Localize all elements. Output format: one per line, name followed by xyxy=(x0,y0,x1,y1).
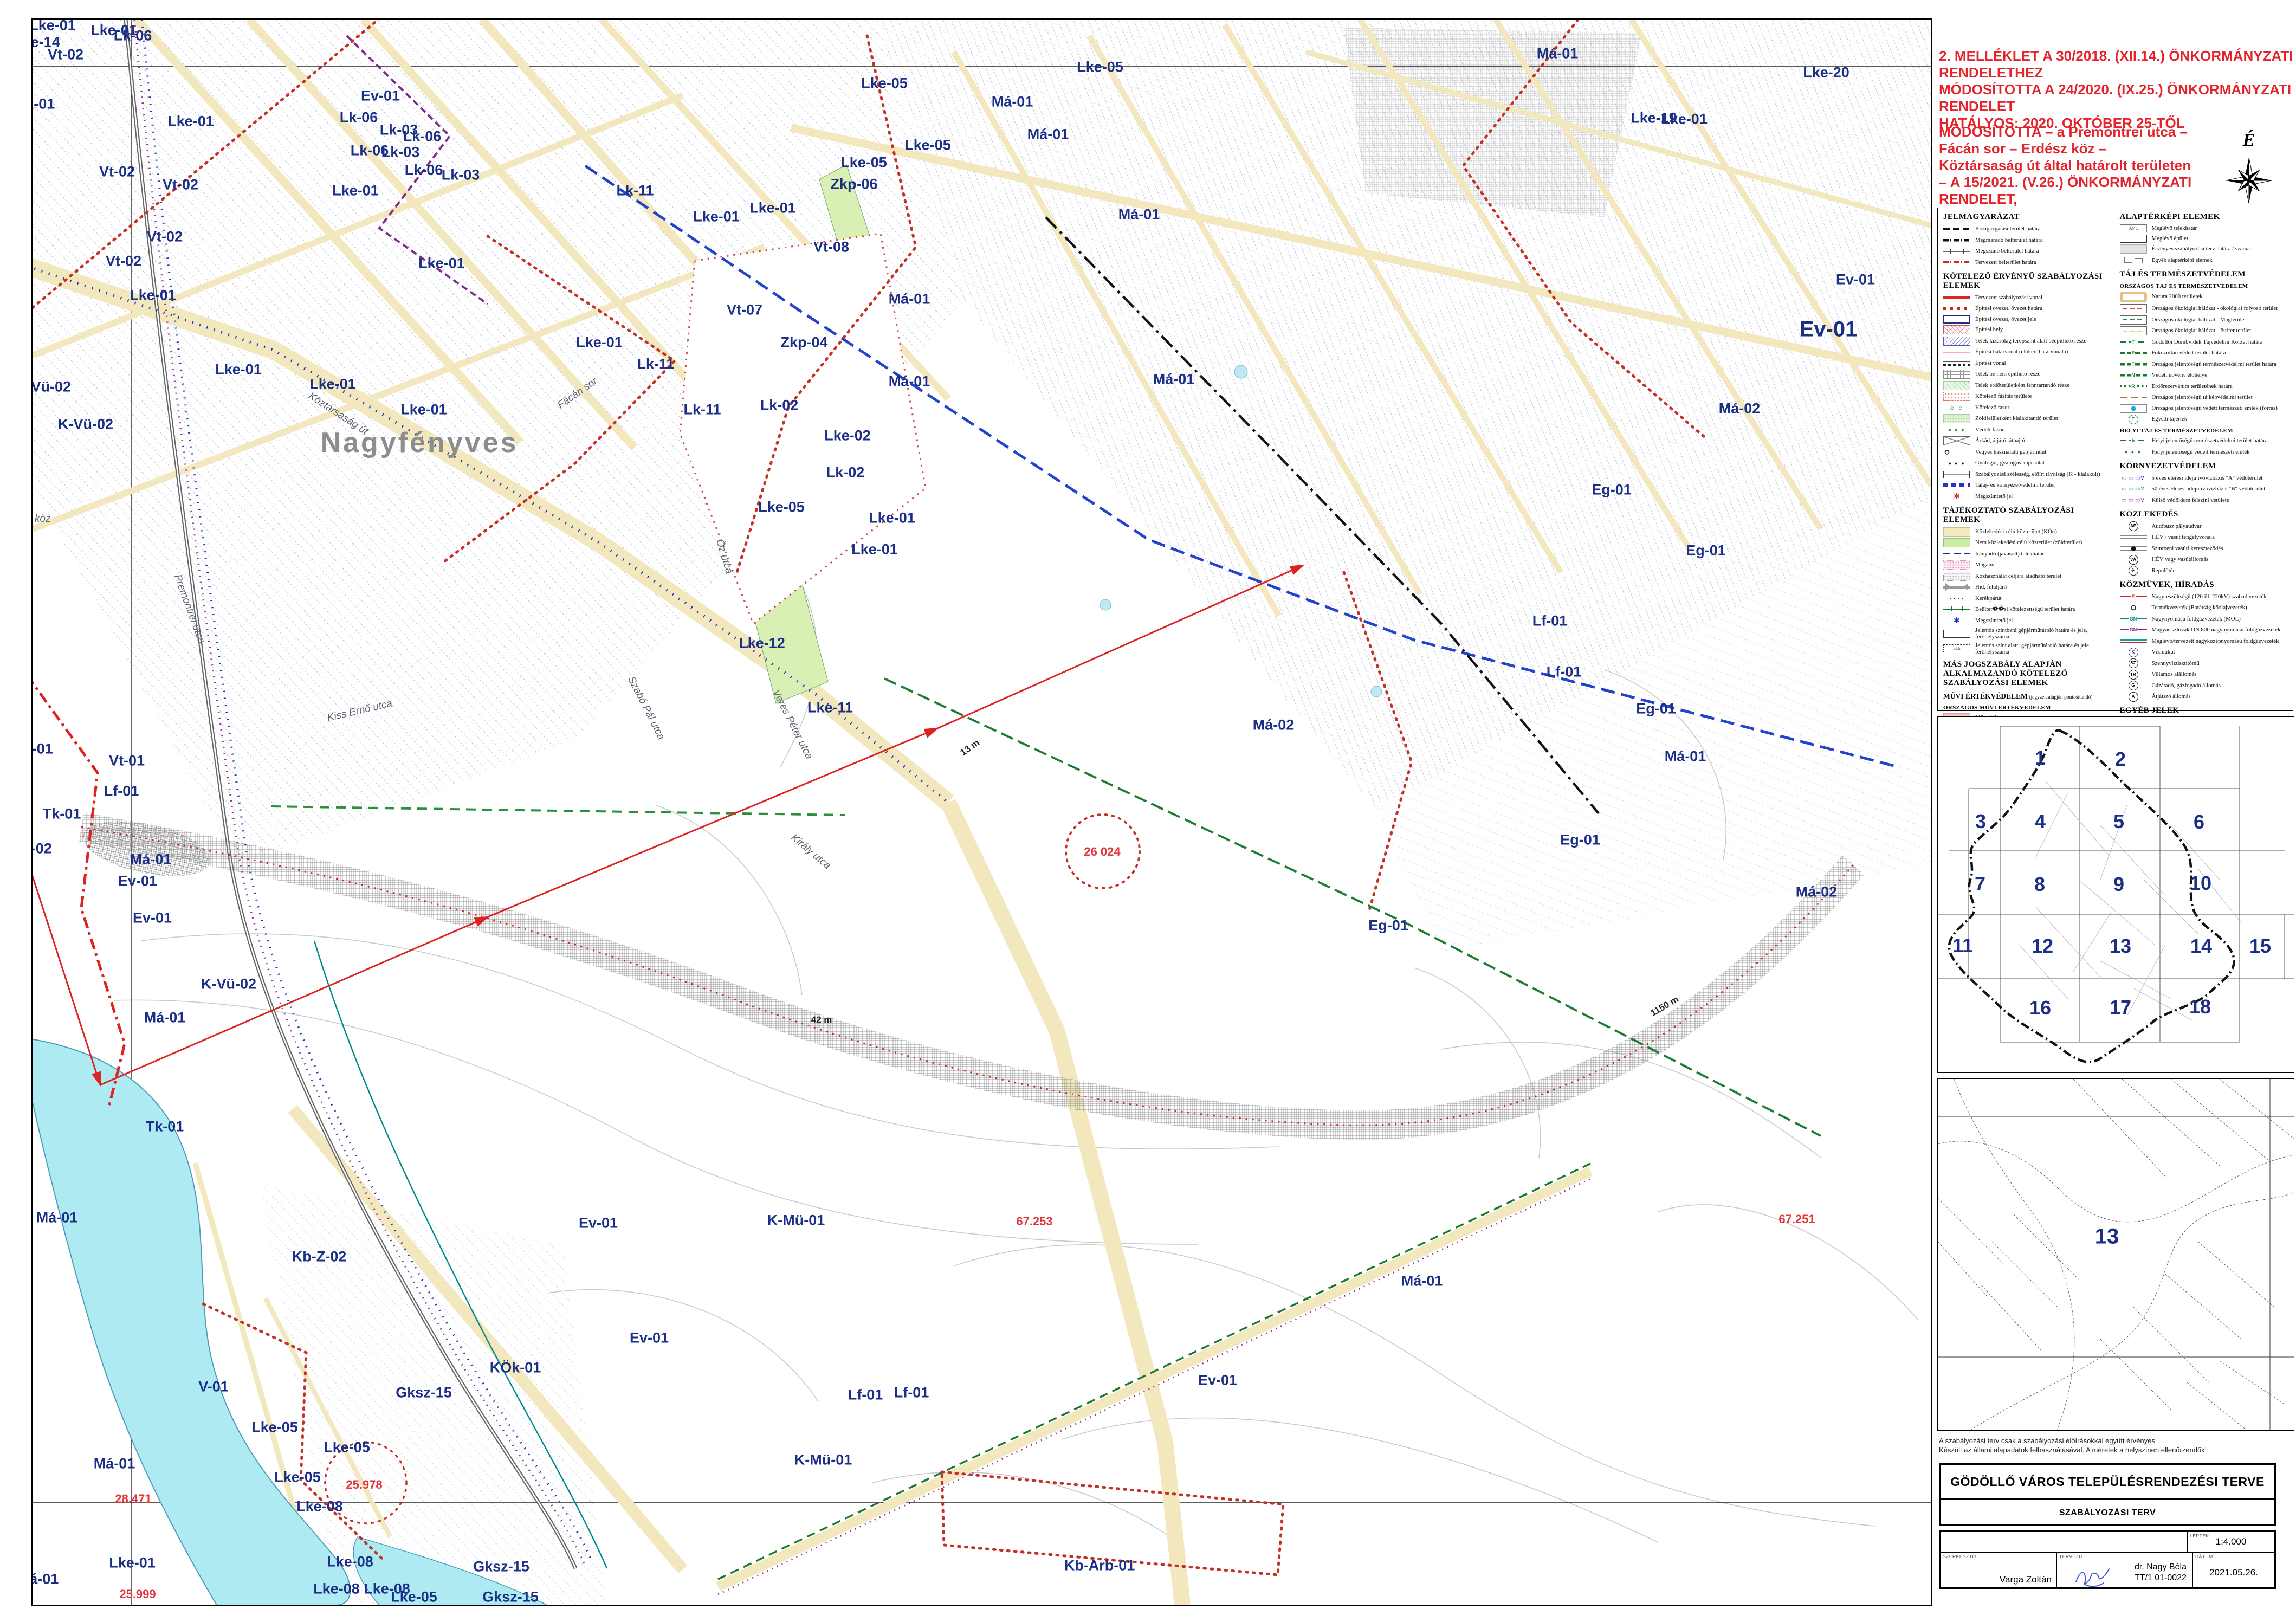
legend-item-label: Tervezett belterület határa xyxy=(1975,259,2036,266)
grid-gray-swatch-icon xyxy=(1943,370,1970,379)
dash-hollow-green-swatch-icon: V xyxy=(2120,484,2147,494)
legend-item-label: Országos jelentőségű természetvédelmi te… xyxy=(2152,361,2276,367)
legend-item: TEgyedi tájérték xyxy=(2120,415,2290,424)
legend-item: Építési övezet, övezet határa xyxy=(1943,304,2113,313)
dim-line-swatch-icon xyxy=(1943,470,1970,479)
legend-item-label: Telek erdőterületként fenntartandó része xyxy=(1975,382,2069,389)
legend-item: Megszüntető jel xyxy=(1943,492,2113,501)
legend-item: TOrszágos jelentőségű természetvédelmi t… xyxy=(2120,360,2290,369)
dash-blue-thick-swatch-icon xyxy=(1943,481,1970,490)
legend-item-label: Építési vonal xyxy=(1975,360,2006,366)
legend-section-heading: KÖTELEZŐ ÉRVÉNYŰ SZABÁLYOZÁSI ELEMEK xyxy=(1943,272,2113,290)
amendment-note-1: 2. MELLÉKLET A 30/2018. (XII.14.) ÖNKORM… xyxy=(1939,48,2296,132)
editor-label: SZERKESZTŐ xyxy=(1943,1554,1976,1559)
legend-item: V5 éves elérési idejű ivóvízbázis "A" vé… xyxy=(2120,474,2290,483)
overview-tile-number: 18 xyxy=(2189,996,2211,1018)
legend-item-label: Közhasználat céljára átadható terület xyxy=(1975,573,2061,579)
dash-hollow-blue-swatch-icon: V xyxy=(2120,474,2147,483)
legend-item: Építési hely xyxy=(1943,325,2113,334)
note2-line2: Köztársaság út által határolt területen xyxy=(1939,157,2221,174)
regulation-plan-map: Lke-01Lke-14Lk-06Lke-01Vt-02KÖk-01Lke-01… xyxy=(31,18,1932,1606)
legend-item: Közhasználat céljára átadható terület xyxy=(1943,572,2113,581)
legend-section-heading: KÖRNYEZETVÉDELEM xyxy=(2120,462,2290,471)
legend-item: Árkád, átjáró, áthajtó xyxy=(1943,436,2113,445)
legend-item-label: Nem közlekedési célú közterület (zöldter… xyxy=(1975,539,2082,546)
legend-item-label: Termékvezeték (Barátság kőolajvezeték) xyxy=(2152,604,2247,611)
line-red-E-swatch-icon: E xyxy=(2120,592,2147,602)
legend-item-label: Villamos alállomás xyxy=(2152,671,2197,677)
bowtie-swatch-icon xyxy=(1943,583,1970,592)
legend-item: KVízműkút xyxy=(2120,648,2290,657)
legend-item-label: Kötelező fasor xyxy=(1975,404,2009,411)
title-block-table: LÉPTÉK 1:4.000 SZERKESZTŐ Varga Zoltán T… xyxy=(1939,1530,2276,1589)
dash-green-thin-swatch-icon: h xyxy=(2120,436,2147,445)
designer-label: TERVEZŐ xyxy=(2059,1554,2083,1559)
box-x-swatch-icon xyxy=(1943,436,1970,445)
box-navy-swatch-icon xyxy=(1943,315,1970,324)
legend-item-label: Magyar-szlovák DN 800 nagynyomású földgá… xyxy=(2152,626,2281,633)
corner-gray-swatch-icon xyxy=(2120,256,2147,265)
legend-item: SZSzennyvíztisztítómű xyxy=(2120,659,2290,668)
legend-item-label: Szennyvíztisztítómű xyxy=(2152,660,2200,667)
fill-green-dots-swatch-icon xyxy=(1943,414,1970,423)
legend-item: Híd, felüljáró xyxy=(1943,583,2113,592)
legend-item: Építési övezet, övezet jele xyxy=(1943,315,2113,324)
overview-street-texture xyxy=(2019,782,2241,1020)
overview-tile-number: 6 xyxy=(2194,811,2204,833)
legend-item-label: Zöldfelületként kialakítandó terület xyxy=(1975,415,2058,422)
legend-item-label: Gázátadó, gázfogadó állomás xyxy=(2152,682,2221,689)
legend-item-label: Egyedi tájérték xyxy=(2152,416,2188,422)
legend-item-label: Vízműkút xyxy=(2152,649,2175,655)
legend-section-heading: ORSZÁGOS TÁJ ÉS TERMÉSZETVÉDELEM xyxy=(2120,283,2290,289)
legend-item-label: Megszüntető jel xyxy=(1975,617,2013,624)
circle-swatch-icon: ✈ xyxy=(2120,566,2147,576)
legend-item-label: Vegyes használatú gépjárműút xyxy=(1975,449,2046,455)
legend-item-label: Építési hely xyxy=(1975,326,2003,333)
legend-item: Irányadó (javasolt) telekhatár xyxy=(1943,550,2113,559)
dashdot-red-swatch-icon xyxy=(1943,258,1970,267)
legend-item: Megmaradó belterület határa xyxy=(1943,236,2113,245)
dashdot-black-swatch-icon xyxy=(1943,236,1970,245)
legend-item: Szintbeni vasúti kereszteződés xyxy=(2120,544,2290,553)
legend-item: Kerékpárút xyxy=(1943,594,2113,603)
legend-item: VÁHÉV vagy vasútállomás xyxy=(2120,555,2290,564)
hatch-blue-swatch-icon xyxy=(1943,337,1970,346)
legend-section-heading: HELYI TÁJ ÉS TERMÉSZETVÉDELEM xyxy=(2120,428,2290,434)
legend-item: Tervezett szabályozási vonal xyxy=(1943,293,2113,302)
legend-item: Országos jelentőségű tájképvédelmi terül… xyxy=(2120,393,2290,402)
box-dash-yellow-swatch-icon xyxy=(2120,326,2147,335)
legend-item-label: Külső védőidom felszíni vetülete xyxy=(2152,497,2229,503)
legend-item: Országos ökológiai hálózat - Magterület xyxy=(2120,315,2290,325)
legend-item: Talaj- és környezetvédelmi terület xyxy=(1943,481,2113,490)
legend-item: Telek be nem építhető része xyxy=(1943,370,2113,379)
disclaimer-text: A szabályozási terv csak a szabályozási … xyxy=(1939,1436,2294,1455)
overview-tile-number: 4 xyxy=(2035,810,2046,833)
legend-item-label: Kötelező fásítás területe xyxy=(1975,393,2032,399)
gate-green-swatch-icon xyxy=(1943,605,1970,614)
circles-green-swatch-icon xyxy=(1943,403,1970,412)
inset-drawing xyxy=(1938,1079,2294,1430)
designer-cell: TERVEZŐ dr. Nagy Béla TT/1 01-0022 xyxy=(2057,1553,2193,1587)
dots-dkgreen-swatch-icon xyxy=(1943,425,1970,435)
legend-item-label: Híd, felüljáró xyxy=(1975,584,2007,590)
legend-item-label: Érvényes szabályozási terv határa / szám… xyxy=(2152,245,2250,252)
legend-item-label: Országos jelentőségű védett természeti e… xyxy=(2152,405,2278,411)
legend-item-label: Gödöllői Dombvidék Tájvédelmi Körzet hat… xyxy=(2152,339,2263,345)
inset-tile-number: 13 xyxy=(2095,1225,2119,1249)
box-dash-red-swatch-icon xyxy=(2120,304,2147,313)
legend-item-label: Védett növény élőhelye xyxy=(2152,372,2208,378)
legend-item: NVédett növény élőhelye xyxy=(2120,371,2290,380)
signature xyxy=(2073,1566,2111,1589)
legend-section-heading: JELMAGYARÁZAT xyxy=(1943,212,2113,222)
legend-item-label: Építési határvonal (előkert határvonala) xyxy=(1975,348,2068,355)
fill-gray-dots-swatch-icon xyxy=(1943,572,1970,581)
legend-item-label: Átjátszó állomás xyxy=(2152,693,2191,700)
legend-item-label: Védett fasor xyxy=(1975,426,2004,433)
legend-item-label: Országos jelentőségű tájképvédelmi terül… xyxy=(2152,394,2253,400)
compass-rose-icon xyxy=(2219,151,2279,210)
legend-section-heading: ALAPTÉRKÉPI ELEMEK xyxy=(2120,212,2290,222)
legend-section-heading: KÖZLEKEDÉS xyxy=(2120,510,2290,519)
dots-area-red-swatch-icon xyxy=(1943,392,1970,401)
legend-item: Közlekedési célú közterület (KÖu) xyxy=(1943,527,2113,537)
overview-tile-number: 8 xyxy=(2034,873,2045,896)
line-circles-swatch-icon xyxy=(1943,448,1970,457)
plan-subtitle: SZABÁLYOZÁSI TERV xyxy=(1941,1500,2274,1526)
disclaimer-line: Készült az állami alapadatok felhasználá… xyxy=(1939,1445,2294,1455)
title-block-empty-cell xyxy=(1941,1532,2188,1552)
legend-item-label: HÉV vagy vasútállomás xyxy=(2152,556,2209,563)
legend-section-heading: MŰVI ÉRTÉKVÉDELEM (jegyzék alapján ponto… xyxy=(1943,692,2113,701)
legend-item-label: Fokozottan védett terület határa xyxy=(2152,350,2226,356)
scale-value: 1:4.000 xyxy=(2216,1536,2247,1547)
dot-cyan-swatch-icon xyxy=(2120,404,2147,413)
legend-item-label: Meglévő/tervezett nagyközépnyomású földg… xyxy=(2152,638,2279,644)
note1-line1: 2. MELLÉKLET A 30/2018. (XII.14.) ÖNKORM… xyxy=(1939,48,2296,81)
legend-item-label: Megmaradó belterület határa xyxy=(1975,237,2043,243)
legend-item: Beültet��si kötelezettségű terület határ… xyxy=(1943,605,2113,614)
legend-item: RErdőrezervátum területének határa xyxy=(2120,382,2290,391)
overview-tile-number: 5 xyxy=(2113,810,2124,833)
legend-section-heading: TÁJ ÉS TERMÉSZETVÉDELEM xyxy=(2120,270,2290,279)
overview-tile-number: 3 xyxy=(1975,810,1986,833)
disclaimer-line: A szabályozási terv csak a szabályozási … xyxy=(1939,1436,2294,1445)
legend-item: VKülső védőidom felszíni vetülete xyxy=(2120,496,2290,505)
overview-tile-number: 13 xyxy=(2110,935,2131,958)
date-cell: DÁTUM 2021.05.26. xyxy=(2193,1553,2274,1587)
overview-tile-number: 10 xyxy=(2190,872,2211,895)
legend-item-label: Közigazgatási terület határa xyxy=(1975,225,2041,232)
editor-cell: SZERKESZTŐ Varga Zoltán xyxy=(1941,1553,2057,1587)
fill-gray-swatch-icon xyxy=(2120,244,2147,254)
legend-item: Megszűnő belterület határa xyxy=(1943,247,2113,256)
legend-item-label: Irányadó (javasolt) telekhatár xyxy=(1975,551,2044,557)
legend-item: Szabályozási szélesség, előírt távolság … xyxy=(1943,470,2113,479)
legend-column-right: ALAPTÉRKÉPI ELEMEK0241Meglévő telekhatár… xyxy=(2120,212,2290,708)
map-drawing xyxy=(33,20,1931,1605)
legend-item: Natura 2000 területek xyxy=(2120,292,2290,302)
note2-line3: – A 15/2021. (V.26.) ÖNKORMÁNYZATI RENDE… xyxy=(1939,174,2221,208)
line-pink-swatch-icon xyxy=(1943,347,1970,357)
legend-item: Országos jelentőségű védett természeti e… xyxy=(2120,404,2290,413)
legend-section-heading: EGYÉB JELEK xyxy=(2120,706,2290,715)
dash-green-thick-swatch-icon: N xyxy=(2120,371,2147,380)
legend-item-label: Kerékpárút xyxy=(1975,595,2002,602)
note1-line2: MÓDOSÍTOTTA A 24/2020. (IX.25.) ÖNKORMÁN… xyxy=(1939,81,2296,115)
legend-item: Vegyes használatú gépjárműút xyxy=(1943,448,2113,457)
legend-item-label: 5 éves elérési idejű ivóvízbázis "A" véd… xyxy=(2152,475,2263,481)
legend-item: TGödöllői Dombvidék Tájvédelmi Körzet ha… xyxy=(2120,338,2290,347)
note2-line1: MÓDOSÍTOTTA – a Premontrei utca – Fácán … xyxy=(1939,124,2221,157)
legend-item-label: Erdőrezervátum területének határa xyxy=(2152,383,2233,390)
scale-label: LÉPTÉK xyxy=(2190,1533,2209,1539)
legend-item-label: Megszűnő belterület határa xyxy=(1975,248,2039,254)
legend-item-label: Gyalogút, gyalogos kapcsolat xyxy=(1975,460,2045,466)
date-value: 2021.05.26. xyxy=(2209,1567,2258,1578)
legend-item-label: Magánút xyxy=(1975,561,1996,568)
legend-item: Közigazgatási terület határa xyxy=(1943,224,2113,234)
overview-tile-number: 7 xyxy=(1975,873,1985,895)
overview-tile-number: 2 xyxy=(2115,748,2126,771)
legend-item-label: Országos ökológiai hálózat - ökológiai f… xyxy=(2152,305,2278,312)
legend-item: 0241Meglévő telekhatár xyxy=(2120,224,2290,232)
legend-item: Építési vonal xyxy=(1943,359,2113,368)
dash-green-thick-swatch-icon: T xyxy=(2120,360,2147,369)
legend-item: HÉV / vasút tengelyvonala xyxy=(2120,533,2290,542)
legend-item-label: Országos ökológiai hálózat - Puffer terü… xyxy=(2152,327,2252,334)
date-label: DÁTUM xyxy=(2195,1554,2213,1559)
legend-item-label: Meglévő épület xyxy=(2152,235,2188,242)
legend-item: Jelentős szintbeni gépjárműtároló határa… xyxy=(1943,627,2113,640)
legend-section-heading: KÖZMŰVEK, HÍRADÁS xyxy=(2120,580,2290,590)
north-label: É xyxy=(2216,130,2281,151)
legend-item: GNMagyar-szlovák DN 800 nagynyomású föld… xyxy=(2120,625,2290,635)
legend-item: Zöldfelületként kialakítandó terület xyxy=(1943,414,2113,423)
legend-item: ✈Repülőtér xyxy=(2120,566,2290,576)
legend-item: Érvényes szabályozási terv határa / szám… xyxy=(2120,244,2290,254)
dots-black-swatch-icon xyxy=(1943,458,1970,468)
legend-item: Nem közlekedési célú közterület (zöldter… xyxy=(1943,538,2113,547)
legend-item: Egyéb alaptérképi elemek xyxy=(2120,256,2290,265)
fill-pink-dots-swatch-icon xyxy=(1943,560,1970,570)
overview-tile-number: 11 xyxy=(1952,934,1973,957)
legend-item: V50 éves elérési idejű ivóvízbázis "B" v… xyxy=(2120,484,2290,494)
legend-item: Helyi jelentőségű védett természeti emlé… xyxy=(2120,448,2290,457)
legend-item-label: Nagynyomású földgázvezeték (MOL) xyxy=(2152,616,2241,622)
line-black-O-swatch-icon xyxy=(2120,603,2147,612)
legend-item: Meglévő épület xyxy=(2120,235,2290,243)
overview-tile-number: 1 xyxy=(2035,747,2046,770)
title-block-header: GÖDÖLLŐ VÁROS TELEPÜLÉSRENDEZÉSI TERVE S… xyxy=(1939,1463,2276,1526)
legend-item-label: Repülőtér xyxy=(2152,567,2175,574)
legend-panel: JELMAGYARÁZATKözigazgatási terület határ… xyxy=(1937,208,2293,711)
star-red-swatch-icon xyxy=(1943,492,1970,501)
legend-item: Magánút xyxy=(1943,560,2113,570)
rail-swatch-icon xyxy=(2120,533,2147,542)
legend-item-label: Megszüntető jel xyxy=(1975,493,2013,500)
legend-item-label: Építési övezet, övezet jele xyxy=(1975,316,2036,322)
scale-cell: LÉPTÉK 1:4.000 xyxy=(2188,1532,2274,1552)
circle-swatch-icon: G xyxy=(2120,681,2147,690)
overview-tile-number: 12 xyxy=(2032,935,2053,958)
legend-section-heading: TÁJÉKOZTATÓ SZABÁLYOZÁSI ELEMEK xyxy=(1943,506,2113,525)
hatched-area-ne xyxy=(1344,28,1642,217)
circle-swatch-icon: TR xyxy=(2120,670,2147,679)
legend-item: Kötelező fasor xyxy=(1943,403,2113,412)
legend-item: Megszüntető jel xyxy=(1943,616,2113,625)
legend-item: hHelyi jelentőségű természetvédelmi terü… xyxy=(2120,436,2290,445)
legend-item: Telek erdőterületként fenntartandó része xyxy=(1943,381,2113,390)
inset-detail-map: 13 xyxy=(1937,1078,2294,1431)
plan-title: GÖDÖLLŐ VÁROS TELEPÜLÉSRENDEZÉSI TERVE xyxy=(1941,1465,2274,1500)
legend-item: Kötelező fásítás területe xyxy=(1943,392,2113,401)
box-num-swatch-icon: 0241 xyxy=(2120,224,2147,232)
legend-item: TRVillamos alállomás xyxy=(2120,670,2290,679)
dash-green-thin-swatch-icon: T xyxy=(2120,338,2147,347)
legend-item-label: Nagyfeszültségű (120 ill. 220kV) szabad … xyxy=(2152,593,2267,600)
circle-swatch-icon: AP xyxy=(2120,522,2147,531)
dots-green-swatch-icon: R xyxy=(2120,382,2147,391)
legend-item-label: Jelentős szintbeni gépjárműtároló határa… xyxy=(1975,627,2113,640)
legend-item-label: Telek kizárólag terepszint alatt beépíth… xyxy=(1975,338,2086,344)
box-plain-swatch-icon xyxy=(2120,235,2147,243)
zigzag-black-swatch-icon xyxy=(1943,359,1970,368)
legend-item: Meglévő/tervezett nagyközépnyomású földg… xyxy=(2120,637,2290,646)
legend-item: GGázátadó, gázfogadó állomás xyxy=(2120,681,2290,690)
legend-item-label: HÉV / vasút tengelyvonala xyxy=(2152,534,2215,540)
legend-item-label: Natura 2000 területek xyxy=(2152,293,2203,300)
legend-item-label: Egyéb alaptérképi elemek xyxy=(2152,257,2213,263)
legend-item-label: Építési övezet, övezet határa xyxy=(1975,305,2042,312)
legend-item-label: Beültet��si kötelezettségű terület határ… xyxy=(1975,606,2075,612)
legend-item-label: Szabályozási szélesség, előírt távolság … xyxy=(1975,471,2100,477)
dash-green-thick-swatch-icon: F xyxy=(2120,348,2147,358)
legend-item-label: Árkád, átjáró, áthajtó xyxy=(1975,437,2025,444)
circle-swatch-icon: VÁ xyxy=(2120,555,2147,564)
legend-item-label: Autóbusz pályaudvar xyxy=(2152,523,2202,529)
legend-item: APAutóbusz pályaudvar xyxy=(2120,522,2290,531)
overview-tile-number: 14 xyxy=(2190,935,2212,958)
legend-item-label: Helyi jelentőségű védett természeti emlé… xyxy=(2152,449,2250,455)
fill-tan-swatch-icon xyxy=(1943,527,1970,537)
tick-line-swatch-icon xyxy=(1943,247,1970,256)
line-teal-GN-swatch-icon: GN xyxy=(2120,615,2147,624)
overview-tile-number: 9 xyxy=(2113,873,2124,896)
dots-dkgreen-swatch-icon xyxy=(2120,448,2147,457)
inset-street-texture xyxy=(1938,1079,2294,1430)
rail-cross-swatch-icon xyxy=(2120,544,2147,553)
legend-item: ÁÁtjátszó állomás xyxy=(2120,692,2290,701)
legend-item: Országos ökológiai hálózat - Puffer terü… xyxy=(2120,326,2290,335)
legend-item-label: 50 éves elérési idejű ivóvízbázis "B" vé… xyxy=(2152,486,2266,492)
box-p-swatch-icon xyxy=(1943,630,1970,638)
dots-red-swatch-icon xyxy=(1943,304,1970,313)
line-purple-GN-swatch-icon: GN xyxy=(2120,625,2147,635)
legend-item-label: Helyi jelentőségű természetvédelmi terül… xyxy=(2152,437,2268,444)
overview-tile-number: 16 xyxy=(2029,997,2051,1019)
overview-tile-number: 17 xyxy=(2110,996,2131,1019)
legend-item-label: Országos ökológiai hálózat - Magterület xyxy=(2152,316,2246,323)
legend-item-label: Jelentős szint alatti gépjárműtároló hat… xyxy=(1975,642,2113,655)
legend-item-label: Tervezett szabályozási vonal xyxy=(1975,294,2042,301)
overview-index-map: 123456789101112131415161718 xyxy=(1937,716,2294,1073)
legend-item: Tervezett belterület határa xyxy=(1943,258,2113,267)
circle-swatch-icon: T xyxy=(2120,415,2147,424)
cross-green-swatch-icon xyxy=(1943,381,1970,390)
legend-item-label: Telek be nem építhető része xyxy=(1975,371,2040,377)
dots-navy-swatch-icon xyxy=(1943,594,1970,603)
legend-item: FFokozottan védett terület határa xyxy=(2120,348,2290,358)
legend-item-label: Meglévő telekhatár xyxy=(2152,225,2197,231)
legend-item-label: Közlekedési célú közterület (KÖu) xyxy=(1975,528,2057,535)
legend-item: Gyalogút, gyalogos kapcsolat xyxy=(1943,458,2113,468)
legend-item-label: Talaj- és környezetvédelmi terület xyxy=(1975,482,2055,488)
dash-hollow-purple-swatch-icon: V xyxy=(2120,496,2147,505)
dash-brown-swatch-icon xyxy=(2120,393,2147,402)
legend-section-heading: ORSZÁGOS MŰVI ÉRTÉKVÉDELEM xyxy=(1943,705,2113,711)
legend-item: GNNagynyomású földgázvezeték (MOL) xyxy=(2120,615,2290,624)
line-dual-swatch-icon xyxy=(2120,637,2147,646)
frame-tan-swatch-icon xyxy=(2120,292,2147,302)
designer-id: TT/1 01-0022 xyxy=(2135,1573,2187,1584)
legend-section-heading: MÁS JOGSZABÁLY ALAPJÁN ALKALMAZANDÓ KÖTE… xyxy=(1943,660,2113,688)
box-dash-green-swatch-icon xyxy=(2120,315,2147,325)
hatch-red-swatch-icon xyxy=(1943,325,1970,334)
legend-item: Építési határvonal (előkert határvonala) xyxy=(1943,347,2113,357)
dash-black-swatch-icon xyxy=(1943,224,1970,234)
north-arrow: É xyxy=(2216,130,2281,217)
legend-item: 515Jelentős szint alatti gépjárműtároló … xyxy=(1943,642,2113,655)
legend-item-label: Szintbeni vasúti kereszteződés xyxy=(2152,545,2223,552)
legend-item: Országos ökológiai hálózat - ökológiai f… xyxy=(2120,304,2290,313)
plan-sheet: { "header": { "block1": [ "2. MELLÉKLET … xyxy=(0,0,2296,1622)
fill-green-swatch-icon xyxy=(1943,538,1970,547)
legend-item: Termékvezeték (Barátság kőolajvezeték) xyxy=(2120,603,2290,612)
solid-red-swatch-icon xyxy=(1943,293,1970,302)
star-blue-swatch-icon xyxy=(1943,616,1970,625)
circle-swatch-icon: Á xyxy=(2120,692,2147,701)
legend-item: Telek kizárólag terepszint alatt beépíth… xyxy=(1943,337,2113,346)
box-p-dash-swatch-icon: 515 xyxy=(1943,644,1970,652)
editor-name: Varga Zoltán xyxy=(2000,1574,2052,1585)
legend-column-left: JELMAGYARÁZATKözigazgatási terület határ… xyxy=(1943,212,2113,708)
dash-navy-swatch-icon xyxy=(1943,550,1970,559)
circle-swatch-icon: K xyxy=(2120,648,2147,657)
circle-swatch-icon: SZ xyxy=(2120,659,2147,668)
legend-item: ENagyfeszültségű (120 ill. 220kV) szabad… xyxy=(2120,592,2290,602)
designer-name: dr. Nagy Béla xyxy=(2135,1562,2187,1573)
overview-tile-number: 15 xyxy=(2249,935,2271,958)
legend-item: Védett fasor xyxy=(1943,425,2113,435)
